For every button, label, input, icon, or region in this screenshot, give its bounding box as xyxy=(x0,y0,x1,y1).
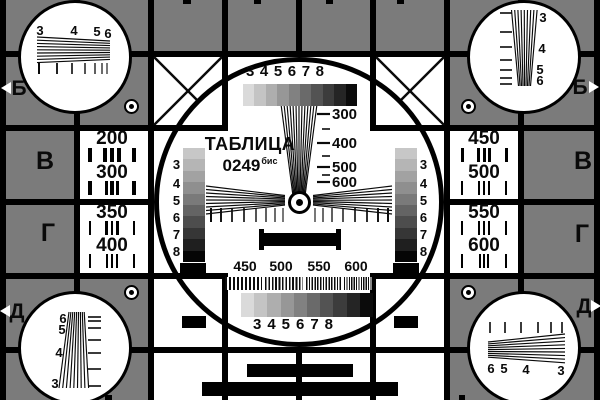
right-grayscale-label: 8 xyxy=(416,243,431,259)
frequency-burst-segment xyxy=(344,277,372,290)
burst-frequency-label: 550 xyxy=(301,258,337,274)
card-number-suffix: бис xyxy=(261,156,277,166)
grayscale-step xyxy=(395,228,417,239)
card-number: 0249бис xyxy=(203,156,297,176)
corner-scale-label-top-left: 3 xyxy=(33,22,47,38)
corner-scale-label-bottom-right: 5 xyxy=(497,360,511,376)
grayscale-step xyxy=(243,84,254,106)
reflection-test-block xyxy=(180,263,206,275)
grayscale-step xyxy=(183,228,205,239)
resolution-tick xyxy=(488,221,490,235)
resolution-number: 600 xyxy=(459,235,509,255)
resolution-tick xyxy=(461,148,464,162)
grayscale-step xyxy=(183,171,205,182)
left-grayscale-label: 6 xyxy=(169,209,184,225)
grayscale-step xyxy=(334,84,345,106)
grayscale-step xyxy=(395,182,417,193)
registration-mark-dot xyxy=(466,290,471,295)
reflection-test-bar xyxy=(394,316,418,328)
resolution-tick xyxy=(132,181,135,195)
resolution-tick xyxy=(88,148,92,162)
registration-mark-dot xyxy=(129,290,134,295)
resolution-tick xyxy=(116,181,119,195)
frequency-burst-segment xyxy=(306,277,341,290)
left-grayscale-label: 7 xyxy=(169,226,184,242)
grayscale-step xyxy=(395,194,417,205)
grayscale-step xyxy=(395,205,417,216)
grayscale-step xyxy=(395,159,417,170)
edge-letter-right: В xyxy=(570,148,596,174)
wedge-frequency-label: 500 xyxy=(332,159,368,175)
left-grayscale-label: 4 xyxy=(169,175,184,191)
burst-frequency-label: 500 xyxy=(263,258,299,274)
edge-pointer-left xyxy=(0,305,10,317)
grayscale-step xyxy=(183,239,205,250)
frequency-burst-segment xyxy=(225,277,262,290)
right-grayscale-label: 4 xyxy=(416,175,431,191)
resolution-tick xyxy=(461,254,463,268)
resolution-tick xyxy=(479,254,481,268)
corner-scale-label-top-left: 4 xyxy=(67,22,81,38)
grayscale-step xyxy=(395,239,417,250)
resolution-tick xyxy=(89,221,92,235)
grayscale-step xyxy=(346,84,357,106)
scale-label: 4 xyxy=(260,64,268,79)
card-number-value: 0249 xyxy=(223,156,261,175)
resolution-tick xyxy=(483,181,486,195)
resolution-number: 200 xyxy=(87,128,137,148)
corner-scale-label-bottom-right: 3 xyxy=(554,362,568,378)
left-grayscale-label: 5 xyxy=(169,192,184,208)
grayscale-step xyxy=(183,251,205,262)
resolution-tick xyxy=(110,148,114,162)
resolution-tick xyxy=(487,254,489,268)
wedge-frequency-label: 300 xyxy=(332,106,368,122)
scale-label: 3 xyxy=(246,64,254,79)
right-grayscale xyxy=(395,148,417,262)
resolution-tick xyxy=(89,254,91,268)
grayscale-step xyxy=(323,84,334,106)
left-grayscale xyxy=(183,148,205,262)
center-bullseye-dot xyxy=(296,199,303,206)
reflection-test-bar xyxy=(182,316,206,328)
scale-label: 8 xyxy=(316,64,324,79)
grayscale-step xyxy=(277,84,288,106)
scale-label: 6 xyxy=(288,64,296,79)
grayscale-step xyxy=(395,251,417,262)
corner-scale-label-top-right: 3 xyxy=(536,9,550,25)
sync-test-bar-upper xyxy=(247,364,353,377)
right-grayscale-label: 3 xyxy=(416,156,431,172)
scale-label: 7 xyxy=(310,317,318,332)
resolution-tick xyxy=(483,221,485,235)
frequency-burst-segment xyxy=(265,277,303,290)
grayscale-step xyxy=(183,148,205,159)
resolution-tick xyxy=(488,148,491,162)
resolution-number: 450 xyxy=(459,128,509,148)
resolution-tick xyxy=(116,254,118,268)
resolution-tick xyxy=(106,254,108,268)
wedge-frequency-label: 400 xyxy=(332,135,368,151)
grayscale-step xyxy=(333,293,346,317)
registration-mark-dot xyxy=(466,104,471,109)
center-black-bar-cap xyxy=(259,229,264,250)
corner-scale-label-top-right: 6 xyxy=(533,72,547,88)
grayscale-step xyxy=(254,84,265,106)
resolution-tick xyxy=(488,181,491,195)
edge-pointer-right xyxy=(589,81,599,93)
resolution-number: 550 xyxy=(459,202,509,222)
resolution-number: 300 xyxy=(87,162,137,182)
resolution-tick xyxy=(111,254,113,268)
grayscale-step xyxy=(300,84,311,106)
resolution-tick xyxy=(88,181,91,195)
grayscale-step xyxy=(183,194,205,205)
scale-label: 3 xyxy=(253,317,261,332)
left-grayscale-label: 3 xyxy=(169,156,184,172)
resolution-tick xyxy=(133,221,136,235)
scale-label: 5 xyxy=(282,317,290,332)
resolution-tick xyxy=(105,181,108,195)
tv-test-card: ТАБЛИЦА 0249бис 345678345678345678345678… xyxy=(0,0,600,400)
corner-scale-label-top-right: 4 xyxy=(535,40,549,56)
resolution-tick xyxy=(483,254,485,268)
resolution-tick xyxy=(505,221,507,235)
resolution-tick xyxy=(477,148,480,162)
corner-scale-label-bottom-left: 3 xyxy=(48,375,62,391)
grayscale-step xyxy=(360,293,373,317)
card-title: ТАБЛИЦА xyxy=(203,134,297,155)
right-grayscale-label: 5 xyxy=(416,192,431,208)
card-title-block: ТАБЛИЦА 0249бис xyxy=(203,134,297,176)
top-scale-labels: 345678 xyxy=(246,63,324,79)
resolution-tick xyxy=(132,148,136,162)
resolution-tick xyxy=(483,148,486,162)
grayscale-step xyxy=(183,159,205,170)
resolution-tick xyxy=(110,181,113,195)
corner-scale-label-bottom-left: 5 xyxy=(55,321,69,337)
grayscale-step xyxy=(254,293,267,317)
grayscale-step xyxy=(347,293,360,317)
resolution-tick xyxy=(505,181,508,195)
scale-label: 6 xyxy=(296,317,304,332)
grayscale-step xyxy=(183,216,205,227)
grayscale-step xyxy=(294,293,307,317)
reflection-test-block xyxy=(393,263,419,275)
grayscale-step xyxy=(241,293,254,317)
bottom-grayscale xyxy=(241,293,373,317)
resolution-tick xyxy=(116,221,119,235)
resolution-tick xyxy=(117,148,121,162)
edge-letter-left: Г xyxy=(35,220,61,246)
top-grayscale xyxy=(243,84,357,106)
grayscale-step xyxy=(307,293,320,317)
grayscale-step xyxy=(320,293,333,317)
resolution-number: 350 xyxy=(87,202,137,222)
resolution-tick xyxy=(103,148,107,162)
scale-label: 4 xyxy=(267,317,275,332)
corner-scale-label-bottom-right: 6 xyxy=(484,360,498,376)
resolution-tick xyxy=(505,148,508,162)
center-black-bar-cap xyxy=(336,229,341,250)
resolution-tick xyxy=(478,181,481,195)
burst-frequency-label: 450 xyxy=(227,258,263,274)
edge-pointer-right xyxy=(591,300,600,312)
scale-label: 7 xyxy=(302,64,310,79)
right-grayscale-label: 6 xyxy=(416,209,431,225)
corner-scale-label-bottom-left: 4 xyxy=(52,344,66,360)
resolution-tick xyxy=(105,221,108,235)
burst-frequency-label: 600 xyxy=(338,258,374,274)
resolution-number: 500 xyxy=(459,162,509,182)
grayscale-step xyxy=(289,84,300,106)
edge-letter-left: В xyxy=(32,148,58,174)
grayscale-step xyxy=(395,148,417,159)
grayscale-step xyxy=(183,205,205,216)
edge-letter-right: Г xyxy=(569,221,595,247)
corner-scale-label-top-left: 6 xyxy=(101,25,115,41)
left-grayscale-label: 8 xyxy=(169,243,184,259)
grayscale-step xyxy=(311,84,322,106)
grayscale-step xyxy=(395,216,417,227)
grayscale-step xyxy=(266,84,277,106)
wedge-frequency-label: 600 xyxy=(332,174,368,190)
resolution-tick xyxy=(478,221,480,235)
resolution-tick xyxy=(461,221,463,235)
registration-mark-dot xyxy=(129,104,134,109)
grayscale-step xyxy=(183,182,205,193)
bottom-scale-labels: 345678 xyxy=(253,317,333,332)
resolution-tick xyxy=(461,181,464,195)
edge-pointer-left xyxy=(1,82,11,94)
sync-test-bar-lower xyxy=(202,382,398,396)
scale-label: 8 xyxy=(325,317,333,332)
resolution-tick xyxy=(505,254,507,268)
corner-scale-label-bottom-right: 4 xyxy=(519,361,533,377)
resolution-tick xyxy=(133,254,135,268)
resolution-number: 400 xyxy=(87,235,137,255)
center-black-bar xyxy=(263,233,337,246)
scale-label: 5 xyxy=(274,64,282,79)
right-grayscale-label: 7 xyxy=(416,226,431,242)
grayscale-step xyxy=(267,293,280,317)
grayscale-step xyxy=(395,171,417,182)
grayscale-step xyxy=(281,293,294,317)
resolution-tick xyxy=(111,221,114,235)
